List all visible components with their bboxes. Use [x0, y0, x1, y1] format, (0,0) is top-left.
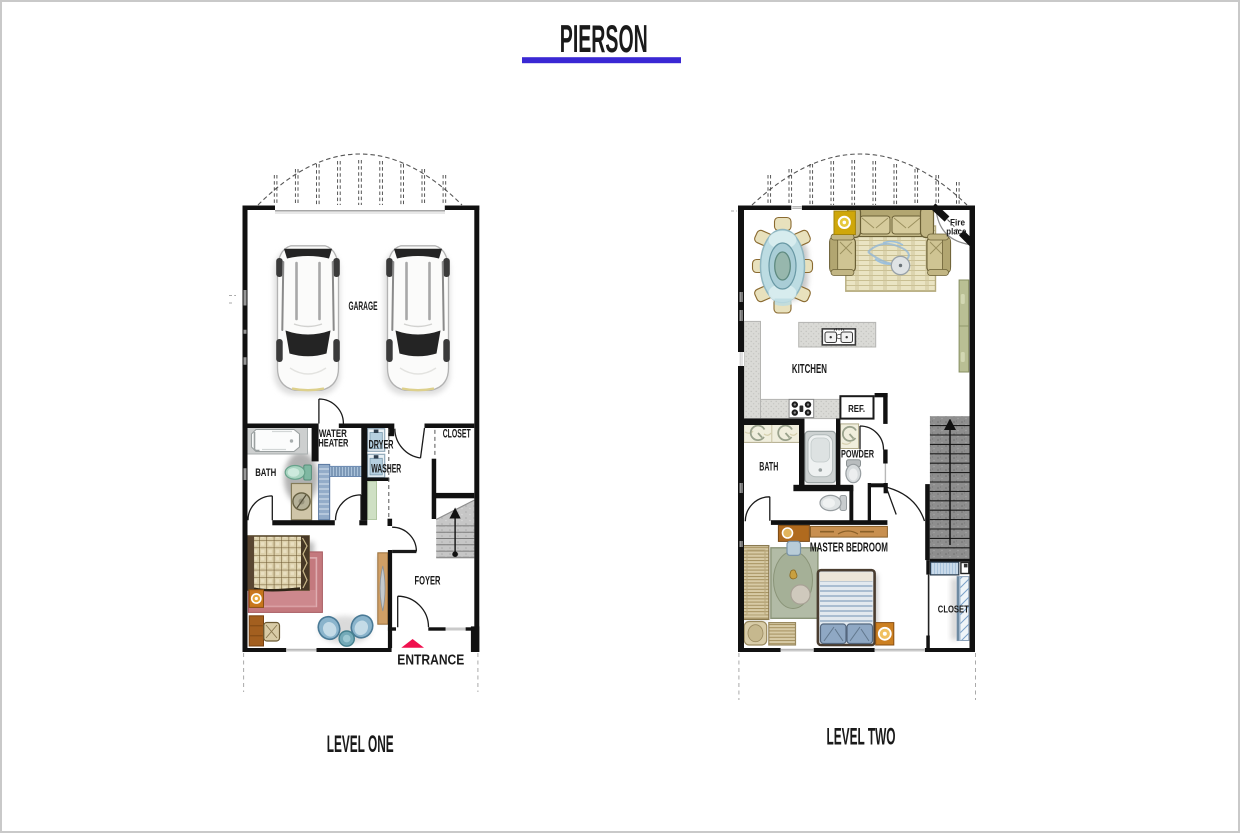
svg-text:KITCHEN: KITCHEN [792, 362, 827, 376]
svg-text:DRYER: DRYER [369, 439, 394, 451]
svg-text:BATH: BATH [759, 461, 778, 473]
svg-text:HEATER: HEATER [318, 438, 348, 450]
svg-text:CLOSET: CLOSET [443, 429, 471, 441]
svg-text:FOYER: FOYER [415, 576, 441, 588]
svg-text:POWDER: POWDER [841, 449, 874, 461]
svg-text:LEVEL TWO: LEVEL TWO [827, 724, 896, 751]
svg-text:MASTER BEDROOM: MASTER BEDROOM [810, 541, 888, 555]
svg-text:GARAGE: GARAGE [349, 299, 378, 313]
svg-text:BATH: BATH [255, 467, 276, 479]
svg-text:place: place [946, 226, 966, 236]
svg-text:LEVEL ONE: LEVEL ONE [327, 731, 394, 758]
svg-text:ENTRANCE: ENTRANCE [397, 653, 464, 669]
svg-text:WASHER: WASHER [371, 463, 401, 475]
svg-text:PIERSON: PIERSON [560, 18, 648, 61]
svg-text:CLOSET: CLOSET [938, 604, 969, 616]
svg-text:REF.: REF. [848, 403, 865, 415]
